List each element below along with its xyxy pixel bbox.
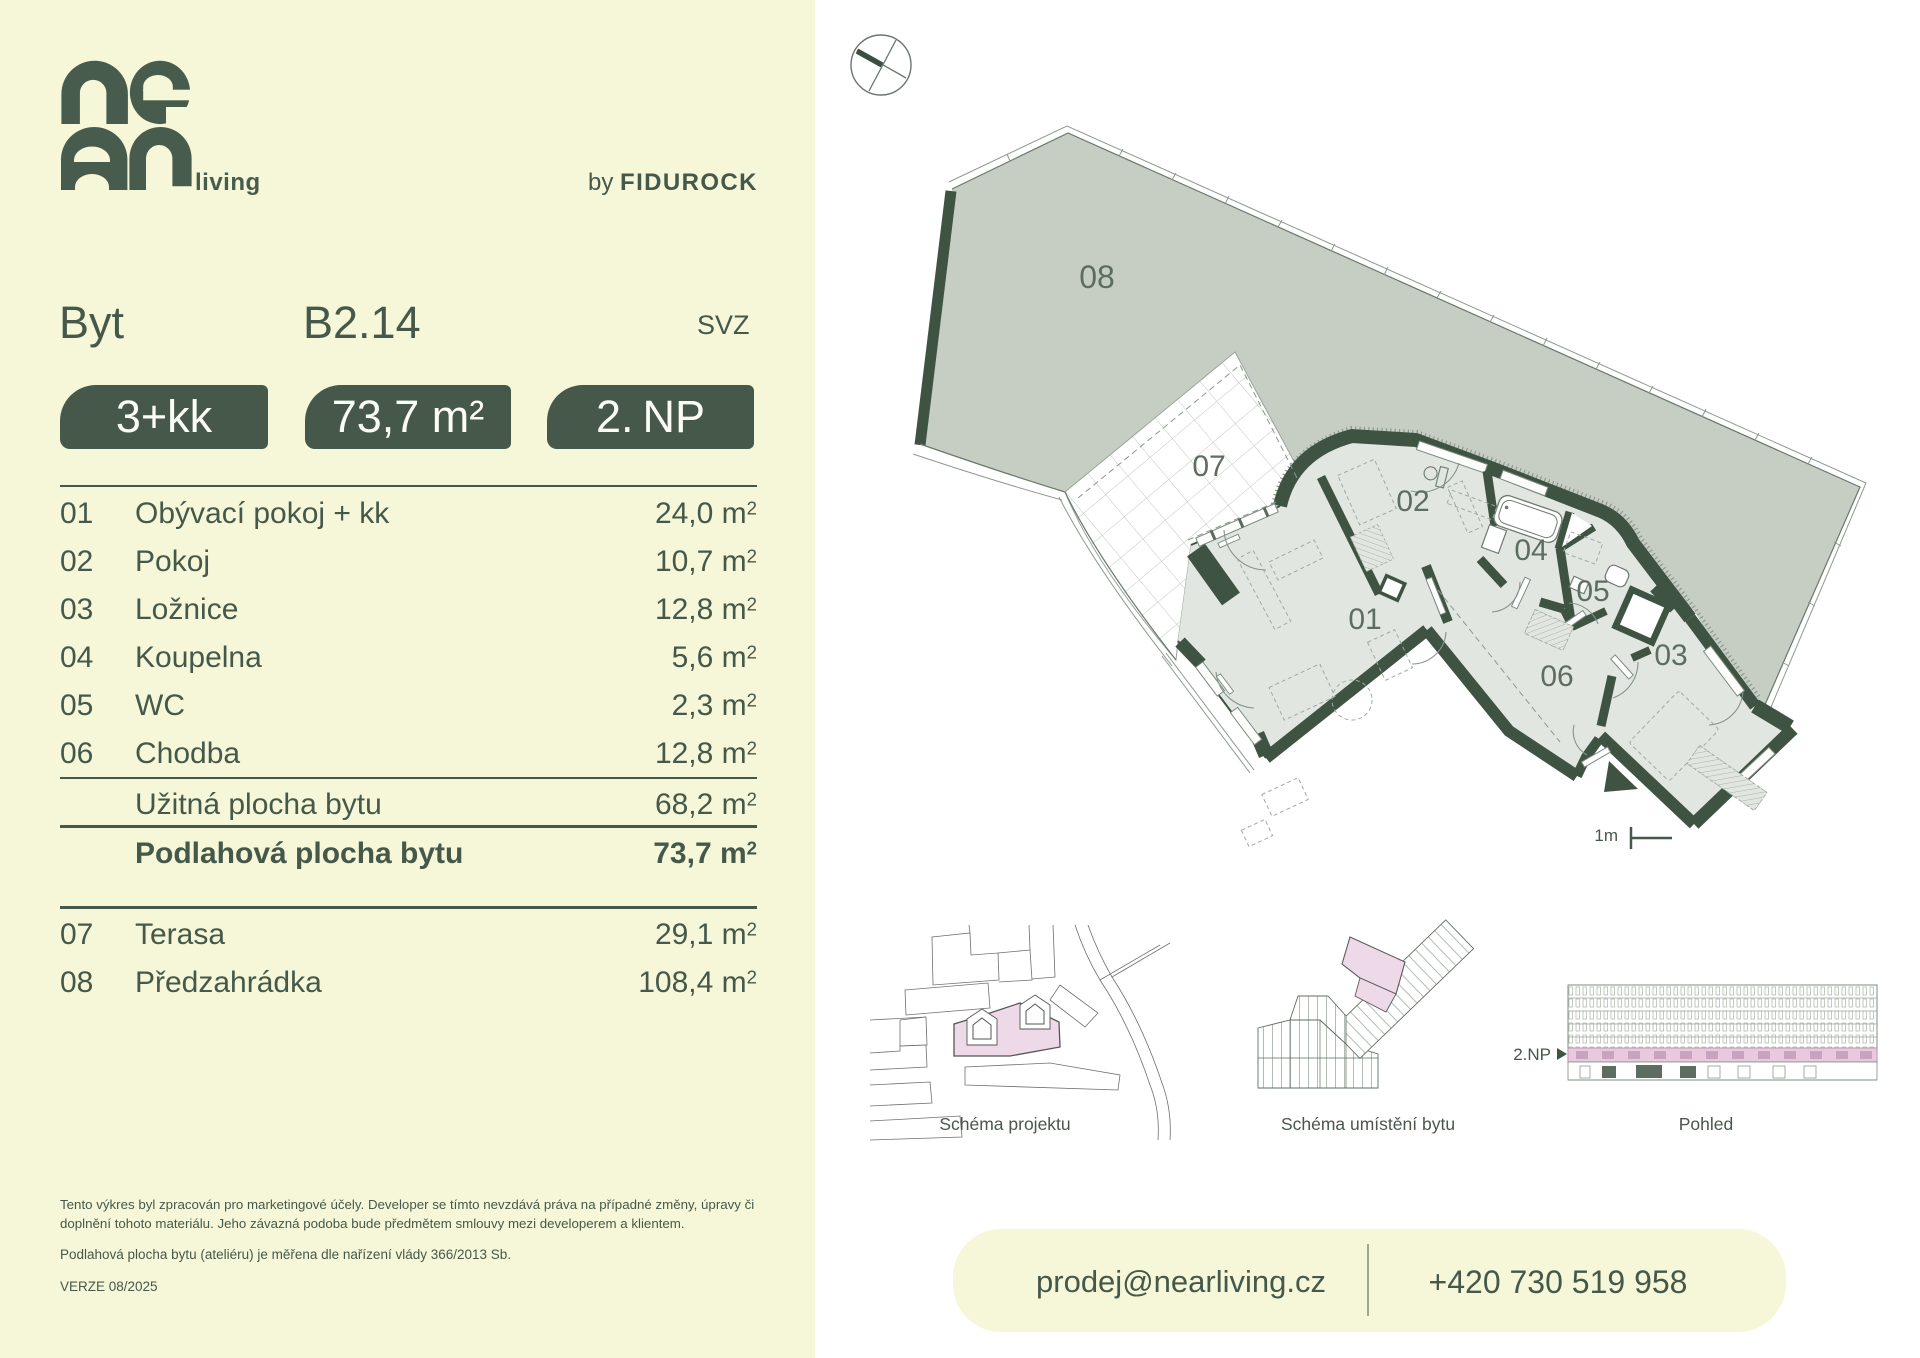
svg-text:02: 02: [1396, 485, 1429, 518]
svg-text:01: 01: [1348, 603, 1381, 636]
svg-text:08: 08: [1079, 259, 1115, 295]
svg-text:06: 06: [1540, 660, 1573, 693]
svg-text:prodej@nearliving.cz: prodej@nearliving.cz: [1036, 1264, 1326, 1299]
svg-text:Pohled: Pohled: [1679, 1114, 1734, 1134]
svg-text:+420 730 519 958: +420 730 519 958: [1429, 1264, 1688, 1300]
svg-text:Schéma projektu: Schéma projektu: [939, 1114, 1070, 1134]
svg-text:2.NP: 2.NP: [1513, 1045, 1551, 1064]
svg-text:07: 07: [1192, 450, 1225, 483]
svg-text:1m: 1m: [1594, 826, 1618, 845]
svg-text:Schéma umístění bytu: Schéma umístění bytu: [1281, 1114, 1455, 1134]
svg-text:04: 04: [1514, 534, 1547, 567]
svg-text:05: 05: [1576, 575, 1609, 608]
svg-text:03: 03: [1654, 639, 1687, 672]
